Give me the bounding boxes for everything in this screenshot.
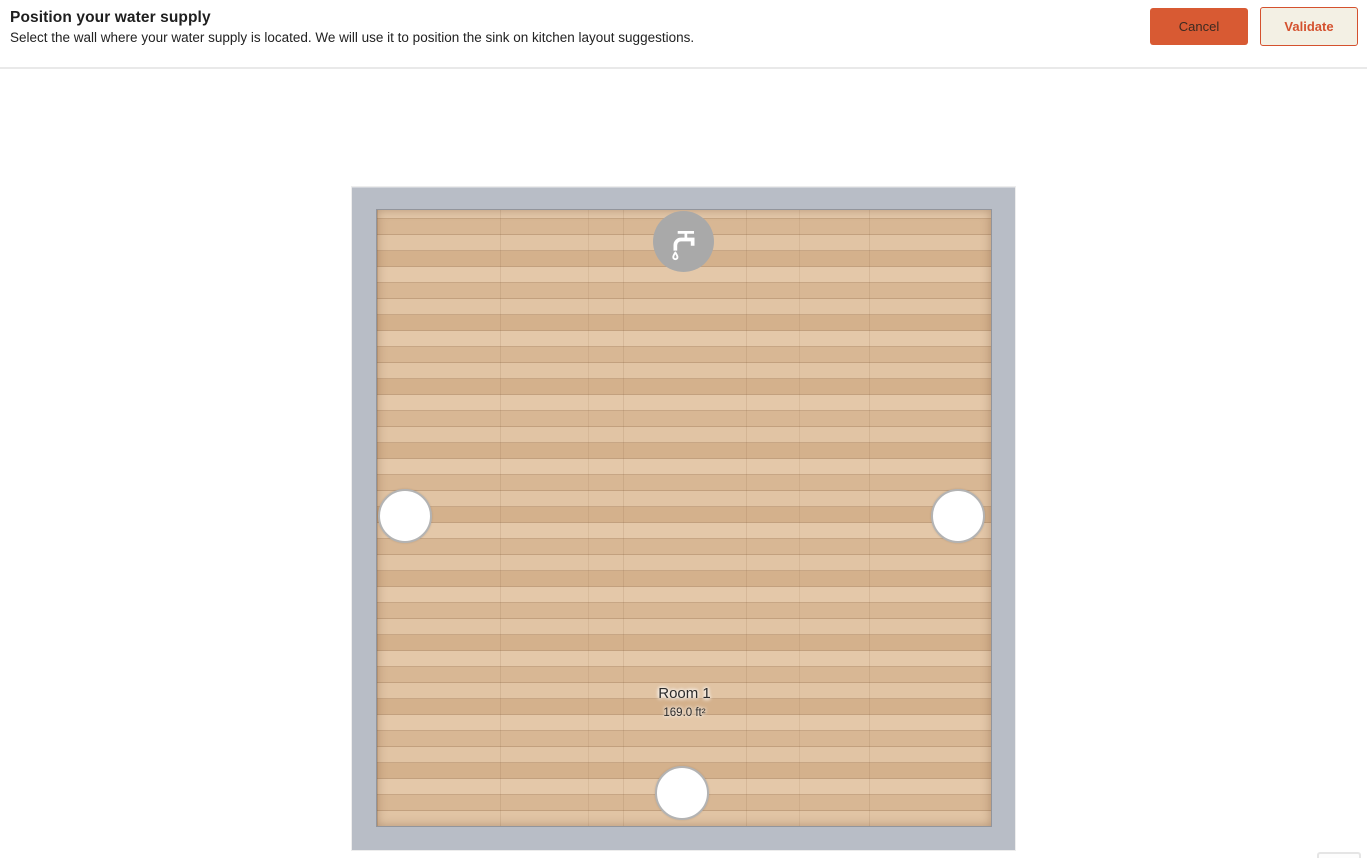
validate-button[interactable]: Validate <box>1260 7 1358 46</box>
header-bar: Position your water supply Select the wa… <box>0 0 1367 69</box>
wall-selector-top[interactable] <box>653 211 714 272</box>
room-floor <box>377 210 991 826</box>
room-walls: Room 1 169.0 ft² <box>352 187 1015 850</box>
app-canvas: Position your water supply Select the wa… <box>0 0 1367 858</box>
wall-selector-right[interactable] <box>931 489 985 543</box>
wall-selector-left[interactable] <box>378 489 432 543</box>
faucet-icon <box>663 221 705 263</box>
cancel-button[interactable]: Cancel <box>1150 8 1248 45</box>
page-subtitle: Select the wall where your water supply … <box>10 30 694 45</box>
page-title: Position your water supply <box>10 9 211 27</box>
wall-selector-bottom[interactable] <box>655 766 709 820</box>
cutoff-element-bottom-right <box>1317 852 1361 858</box>
